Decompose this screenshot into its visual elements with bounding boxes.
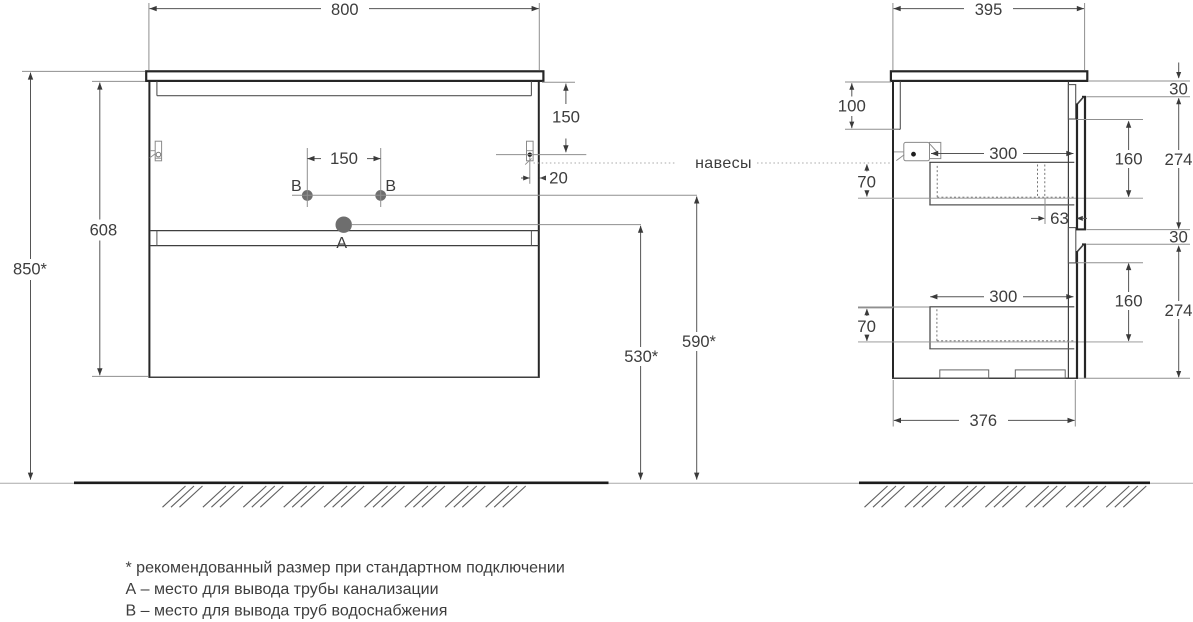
svg-text:376: 376: [970, 412, 998, 430]
svg-text:А: А: [336, 235, 347, 252]
svg-text:В: В: [385, 178, 396, 195]
svg-text:395: 395: [975, 1, 1003, 19]
svg-text:530*: 530*: [624, 348, 659, 366]
svg-text:274: 274: [1165, 301, 1193, 320]
svg-text:63: 63: [1050, 209, 1069, 228]
svg-text:608: 608: [90, 222, 118, 240]
svg-text:800: 800: [331, 1, 359, 19]
svg-text:В – место для вывода труб водо: В – место для вывода труб водоснабжения: [126, 603, 448, 620]
svg-text:30: 30: [1169, 228, 1188, 247]
svg-text:навесы: навесы: [695, 155, 752, 172]
svg-text:850*: 850*: [13, 261, 48, 279]
svg-text:В: В: [291, 178, 302, 195]
svg-text:* рекомендованный размер при с: * рекомендованный размер при стандартном…: [126, 560, 565, 577]
svg-text:590*: 590*: [682, 333, 717, 351]
svg-text:160: 160: [1115, 149, 1143, 168]
svg-text:А – место для вывода трубы кан: А – место для вывода трубы канализации: [126, 581, 439, 598]
svg-text:100: 100: [838, 97, 866, 116]
svg-text:274: 274: [1165, 150, 1193, 169]
svg-text:70: 70: [857, 172, 876, 191]
svg-text:160: 160: [1115, 291, 1143, 310]
svg-text:150: 150: [552, 107, 580, 126]
svg-text:20: 20: [549, 169, 568, 188]
svg-text:30: 30: [1169, 79, 1188, 98]
svg-text:300: 300: [989, 287, 1017, 306]
svg-text:150: 150: [330, 149, 358, 168]
svg-text:70: 70: [857, 317, 876, 336]
svg-text:300: 300: [989, 144, 1017, 163]
